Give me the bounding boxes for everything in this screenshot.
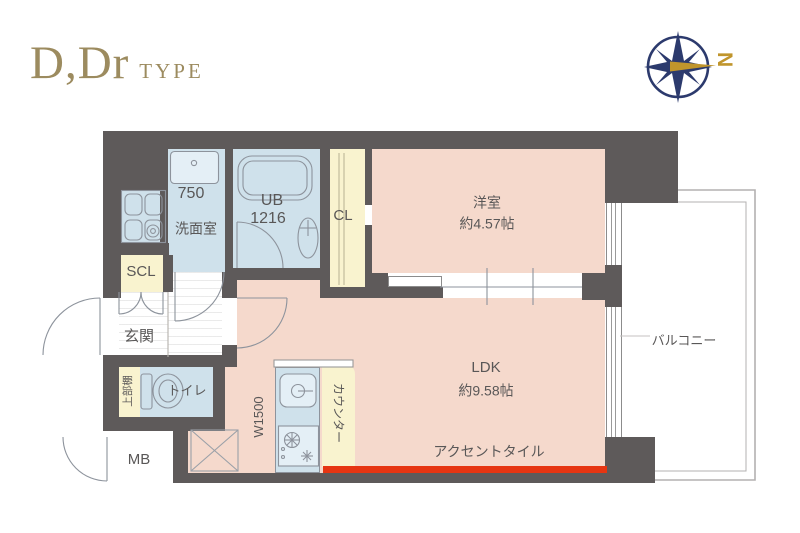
label-counter: カウンター [331, 383, 344, 443]
sliding-door-leaf [388, 276, 442, 287]
wall-cl-left [320, 149, 330, 298]
wall-toilet-right [213, 367, 225, 431]
page-title: D,DrTYPE [30, 36, 204, 90]
kitchen-unit [275, 367, 320, 473]
room-entrance [119, 292, 168, 355]
wall-mb-right [173, 431, 188, 483]
compass-star [644, 31, 712, 103]
wall-toilet-top [103, 355, 237, 367]
hallway [168, 272, 222, 365]
floorplan-page: D,DrTYPE N [0, 0, 800, 533]
compass-north-label: N [713, 52, 736, 67]
label-ldk: LDK [471, 360, 500, 377]
wall-left-upper [103, 149, 121, 298]
accent-tile-line [323, 466, 607, 473]
wall-scl-right [163, 255, 173, 292]
wall-right-mid [605, 265, 622, 307]
wall-ub-bottom [225, 268, 330, 280]
wall-wet-divider [225, 149, 233, 272]
label-entrance: 玄関 [124, 329, 154, 346]
room-ldk-corner [188, 431, 225, 473]
label-western-size: 約4.57帖 [459, 216, 514, 231]
wall-toilet-mb-top [103, 417, 225, 431]
window-ldk [606, 307, 622, 437]
label-bath: UB [261, 192, 283, 210]
wall-divider-right [582, 273, 607, 300]
room-ldk-left [225, 367, 237, 473]
label-meter-box: MB [128, 452, 151, 469]
wall-cl-right-b [365, 225, 372, 273]
label-kitchen-width: W1500 [252, 396, 266, 437]
compass-icon: N [640, 25, 760, 117]
label-toilet: トイレ [167, 384, 206, 398]
wall-top [103, 131, 678, 149]
label-washroom: 洗面室 [175, 221, 217, 236]
room-western [372, 149, 605, 273]
window-western-room [606, 203, 622, 265]
entrance-door-arc [43, 298, 100, 355]
wall-washer-stub [160, 186, 168, 247]
label-accent-tile: アクセントタイル [433, 444, 544, 459]
mb-door-arc [63, 437, 107, 481]
plan-type-name: D,Dr [30, 37, 129, 89]
wall-divider-band [320, 287, 443, 298]
wall-hall-ldk-a [222, 272, 237, 298]
compass-north-arrow [670, 62, 716, 72]
label-washroom-size: 750 [178, 185, 205, 203]
label-closet: CL [333, 208, 352, 225]
label-balcony: バルコニー [652, 334, 717, 348]
label-ldk-size: 約9.58帖 [458, 383, 513, 398]
plan-type-suffix: TYPE [139, 59, 204, 83]
wall-right-bottom [605, 437, 655, 477]
label-bath-size: 1216 [250, 210, 286, 228]
label-upper-shelf: 上部棚 [123, 375, 135, 407]
label-western-room: 洋室 [473, 195, 501, 210]
wall-divider-step [365, 273, 388, 287]
label-shoe-closet: SCL [126, 264, 155, 281]
wall-cl-right-a [365, 149, 372, 205]
wall-right-top-block [605, 149, 678, 203]
wall-scl-top [119, 243, 169, 255]
room-washroom [168, 149, 225, 272]
room-ldk-sliver [237, 280, 320, 298]
wall-bottom [188, 473, 655, 483]
